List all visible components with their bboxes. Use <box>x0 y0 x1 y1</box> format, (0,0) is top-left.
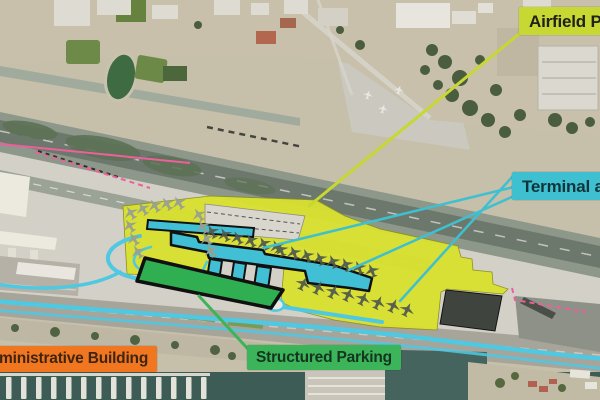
label-terminal: Terminal an <box>512 172 600 200</box>
label-airfield-pavement: Airfield Pa <box>519 7 600 35</box>
marina-dock-row <box>21 377 27 399</box>
marina-dock-row <box>141 377 147 399</box>
marina-dock-row <box>156 377 162 399</box>
marina-dock-row <box>66 377 72 399</box>
marina-dock-row <box>201 377 207 399</box>
marina-dock-row <box>126 377 132 399</box>
label-structured-parking: Structured Parking <box>247 345 401 370</box>
marina-dock-row <box>36 377 42 399</box>
marina-dock-row <box>6 377 12 399</box>
marina-dock-row <box>81 377 87 399</box>
marina-dock-row <box>96 377 102 399</box>
marina-dock-row <box>186 377 192 399</box>
airport-plan-figure: Airfield Pa Terminal an ministrative Bui… <box>0 0 600 400</box>
marina-dock-row <box>111 377 117 399</box>
marina-dock-row <box>51 377 57 399</box>
aerial-map <box>0 0 600 400</box>
label-administrative-building: ministrative Building <box>0 346 157 372</box>
marina-dock-row <box>171 377 177 399</box>
